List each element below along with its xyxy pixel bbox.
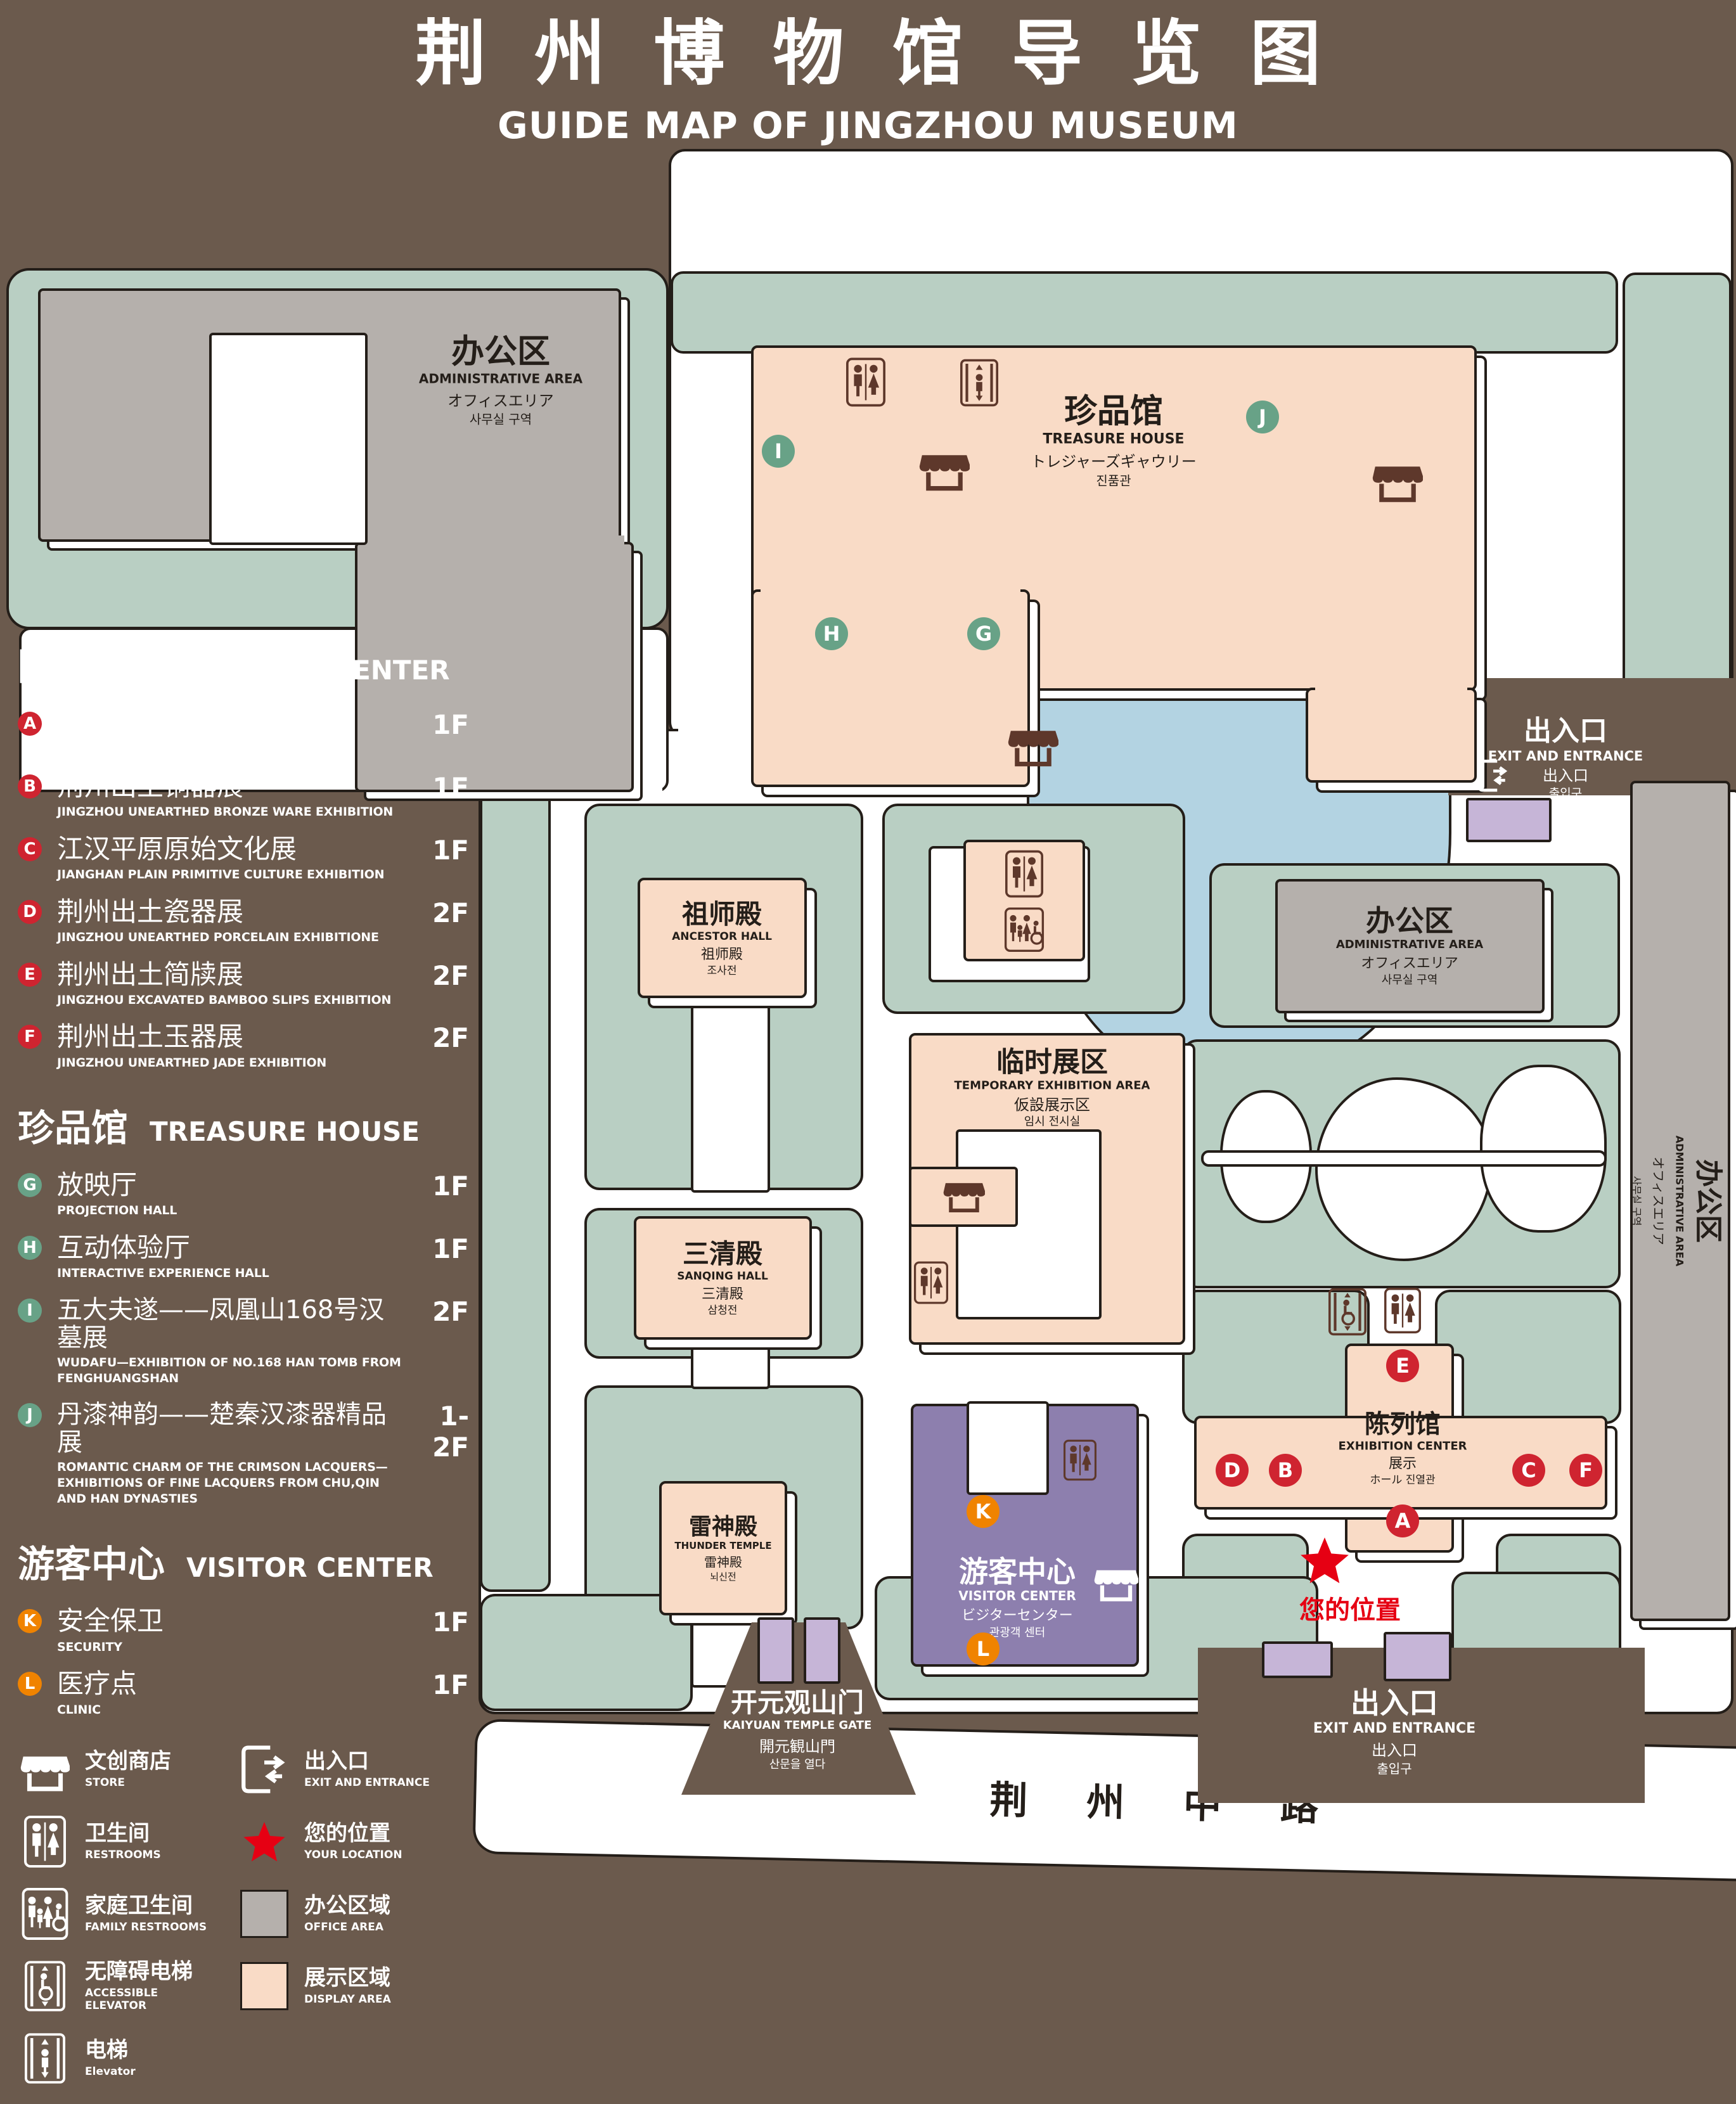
temporary-area-ja: 仮設展示区 <box>1014 1096 1090 1114</box>
family-restrooms-icon <box>18 1888 72 1940</box>
legend-symbol-exit: 出入口 EXIT AND ENTRANCE <box>237 1743 469 1796</box>
legend-B-floor: 1F <box>408 772 469 803</box>
symbol-display-area-en: DISPLAY AREA <box>304 1993 391 2006</box>
sanqing-hall-ja: 三清殿 <box>702 1286 743 1303</box>
kaiyuan-gate-label: 开元观山门 KAIYUAN TEMPLE GATE 開元観山門 산문을 열다 <box>723 1687 872 1771</box>
legend-I-en: WUDAFU—EXHIBITION OF NO.168 HAN TOMB FRO… <box>57 1355 402 1386</box>
legend-I-floor: 2F <box>408 1296 469 1327</box>
store-icon <box>1008 719 1058 769</box>
sanqing-hall-en: SANQING HALL <box>677 1270 768 1283</box>
legend-symbol-accessible-elevator: 无障碍电梯 ACCESSIBLE ELEVATOR <box>18 1960 221 2013</box>
legend-item-C: C 江汉平原原始文化展 JIANGHAN PLAIN PRIMITIVE CUL… <box>18 835 469 883</box>
symbol-family-restrooms-zh: 家庭卫生间 <box>85 1894 207 1918</box>
admin-strip-en: ADMINISTRATIVE AREA <box>1673 1136 1685 1267</box>
legend-C-en: JIANGHAN PLAIN PRIMITIVE CULTURE EXHIBIT… <box>57 867 402 883</box>
thunder-temple-zh: 雷神殿 <box>689 1514 757 1541</box>
symbol-your-location-zh: 您的位置 <box>304 1822 402 1845</box>
lawn-exh-right <box>1435 1290 1621 1424</box>
lawn-top-band <box>671 271 1618 354</box>
legend-B-zh: 荆州出土铜器展 <box>57 772 402 801</box>
store-icon <box>919 444 970 493</box>
legend-F-zh: 荆州出土玉器展 <box>57 1022 402 1051</box>
legend-E-zh: 荆州出土简牍展 <box>57 960 402 989</box>
store-icon <box>943 1174 985 1214</box>
elevator-icon <box>18 2032 72 2084</box>
admin-topleft-ko: 사무실 구역 <box>470 413 532 428</box>
legend-C-zh: 江汉平原原始文化展 <box>57 835 402 864</box>
legend-symbols: 文创商店 STORE 卫生间 RESTROOMS 家庭卫生间 FAMILY RE… <box>18 1743 469 2104</box>
legend-item-H: H 互动体验厅 INTERACTIVE EXPERIENCE HALL 1F <box>18 1233 469 1281</box>
legend-G-zh: 放映厅 <box>57 1171 402 1200</box>
store-icon <box>1372 455 1423 504</box>
admin-topleft-zh: 办公区 <box>451 333 550 372</box>
axis-path-2 <box>691 1337 770 1389</box>
ancestor-hall-label: 祖师殿 ANCESTOR HALL 祖师殿 조사전 <box>672 899 772 977</box>
visitor-center-notch <box>967 1401 1049 1495</box>
admin-topleft-label: 办公区 ADMINISTRATIVE AREA オフィスエリア 사무실 구역 <box>419 333 582 428</box>
legend-badge-H: H <box>18 1236 42 1260</box>
treasure-house-label: 珍品馆 TREASURE HOUSE トレジャーズギャウリー 진품관 <box>1031 392 1197 488</box>
marker-B: B <box>1269 1454 1302 1487</box>
exit-bottom-ko: 출입구 <box>1377 1761 1411 1776</box>
office-area-swatch <box>237 1890 292 1938</box>
exit-bottom-gate <box>1262 1641 1333 1678</box>
sanqing-hall-zh: 三清殿 <box>683 1238 762 1270</box>
kaiyuan-gate-ko: 산문을 열다 <box>769 1758 826 1772</box>
legend-badge-A: A <box>18 712 42 736</box>
symbol-exit-en: EXIT AND ENTRANCE <box>304 1776 430 1789</box>
legend-item-K: K 安全保卫 SECURITY 1F <box>18 1607 469 1655</box>
store-icon <box>18 1745 72 1793</box>
legend-item-J: J 丹漆神韵——楚秦汉漆器精品展 ROMANTIC CHARM OF THE C… <box>18 1401 469 1506</box>
exhibition-center-l3: 展示 <box>1389 1456 1417 1473</box>
restrooms-icon <box>914 1260 948 1305</box>
legend-symbol-store: 文创商店 STORE <box>18 1743 221 1796</box>
admin-right-label: 办公区 ADMINISTRATIVE AREA オフィスエリア 사무실 구역 <box>1336 904 1483 987</box>
marker-D: D <box>1216 1454 1249 1487</box>
exit-right-en: EXIT AND ENTRANCE <box>1488 748 1643 764</box>
legend-badge-B: B <box>18 774 42 799</box>
symbol-office-area-zh: 办公区域 <box>304 1894 390 1918</box>
symbol-store-en: STORE <box>85 1776 171 1789</box>
gate-pillar <box>757 1617 794 1684</box>
kaiyuan-gate-ja: 開元観山門 <box>759 1738 835 1756</box>
legend-item-I: I 五大夫遂——凤凰山168号汉墓展 WUDAFU—EXHIBITION OF … <box>18 1296 469 1386</box>
legend-section-treasure-house: 珍品馆 TREASURE HOUSE G 放映厅 PROJECTION HALL… <box>18 1098 469 1506</box>
legend-F-floor: 2F <box>408 1022 469 1053</box>
legend-section-exhibition-center: 陈列馆 EXHIBITION CENTER A 《火中的凤凰》壁画 THE PH… <box>18 637 469 1070</box>
garden-path-east <box>1480 1065 1607 1233</box>
kaiyuan-gate-zh: 开元观山门 <box>731 1687 864 1719</box>
exit-right-ko: 출입구 <box>1549 786 1582 801</box>
display-area-swatch <box>237 1962 292 2010</box>
symbol-exit-zh: 出入口 <box>304 1750 430 1773</box>
visitor-center-ja: ビジターセンター <box>961 1608 1073 1624</box>
legend-H-en: INTERACTIVE EXPERIENCE HALL <box>57 1266 402 1281</box>
admin-strip-ko: 사무실 구역 <box>1630 1176 1645 1226</box>
legend-item-E: E 荆州出土简牍展 JINGZHOU EXCAVATED BAMBOO SLIP… <box>18 960 469 1008</box>
ancestor-hall-zh: 祖师殿 <box>682 899 762 930</box>
accessible-elevator-icon <box>18 1960 72 2012</box>
legend-L-zh: 医疗点 <box>57 1669 402 1698</box>
marker-C: C <box>1512 1454 1545 1487</box>
treasure-junction-patch-1 <box>1315 679 1467 698</box>
marker-H: H <box>815 617 848 650</box>
legend-A-zh: 《火中的凤凰》壁画 <box>57 709 402 738</box>
legend-badge-D: D <box>18 900 42 924</box>
restrooms-icon <box>18 1815 72 1868</box>
treasure-house-en: TREASURE HOUSE <box>1043 432 1184 448</box>
admin-strip-ja: オフィスエリア <box>1650 1157 1668 1245</box>
legend-visitor-center-zh: 游客中心 <box>18 1534 165 1588</box>
legend-section-visitor-center: 游客中心 VISITOR CENTER K 安全保卫 SECURITY 1F L… <box>18 1534 469 1717</box>
legend-A-floor: 1F <box>408 709 469 740</box>
thunder-temple-ko: 뇌신전 <box>710 1572 736 1583</box>
restrooms-icon <box>1005 848 1043 900</box>
legend-item-G: G 放映厅 PROJECTION HALL 1F <box>18 1171 469 1219</box>
garden-path-cross <box>1201 1150 1607 1167</box>
symbol-elevator-zh: 电梯 <box>85 2039 136 2062</box>
admin-strip-label: 办公区 ADMINISTRATIVE AREA オフィスエリア 사무실 구역 <box>1630 781 1730 1621</box>
exit-right-zh: 出入口 <box>1524 715 1607 748</box>
admin-topleft-ja: オフィスエリア <box>447 392 554 410</box>
temporary-area-zh: 临时展区 <box>996 1046 1108 1079</box>
symbol-restrooms-en: RESTROOMS <box>85 1849 161 1861</box>
legend-symbol-your-location: 您的位置 YOUR LOCATION <box>237 1815 469 1868</box>
exit-bottom-en: EXIT AND ENTRANCE <box>1313 1721 1476 1737</box>
lawn-left-strip <box>480 755 551 1592</box>
legend-badge-K: K <box>18 1609 42 1633</box>
legend-exhibition-center-en: EXHIBITION CENTER <box>150 655 450 686</box>
visitor-center-zh: 游客中心 <box>959 1555 1076 1589</box>
exhibition-center-label: 陈列馆 EXHIBITION CENTER 展示 ホール 진열관 <box>1339 1409 1467 1486</box>
symbol-restrooms-zh: 卫生间 <box>85 1822 161 1845</box>
exit-bottom-gate <box>1384 1632 1451 1681</box>
exit-right-zh2: 出入口 <box>1543 767 1588 785</box>
admin-right-ja: オフィスエリア <box>1361 956 1458 972</box>
legend-K-floor: 1F <box>408 1607 469 1638</box>
legend-item-F: F 荆州出土玉器展 JINGZHOU UNEARTHED JADE EXHIBI… <box>18 1022 469 1070</box>
legend-K-zh: 安全保卫 <box>57 1607 402 1636</box>
symbol-elevator-en: Elevator <box>85 2065 136 2078</box>
thunder-temple-en: THUNDER TEMPLE <box>674 1541 771 1552</box>
symbol-store-zh: 文创商店 <box>85 1750 171 1773</box>
visitor-center-ko: 관광객 센터 <box>989 1626 1046 1639</box>
marker-G: G <box>967 617 1000 650</box>
legend-D-en: JINGZHOU UNEARTHED PORCELAIN EXHIBITIONE <box>57 930 402 946</box>
sanqing-hall-ko: 삼청전 <box>708 1304 738 1317</box>
gate-pillar <box>804 1617 840 1684</box>
legend-badge-I: I <box>18 1299 42 1323</box>
legend-symbol-elevator: 电梯 Elevator <box>18 2032 221 2085</box>
legend-I-zh: 五大夫遂——凤凰山168号汉墓展 <box>57 1296 402 1352</box>
legend-treasure-house-zh: 珍品馆 <box>18 1098 128 1151</box>
page-title: 荆州博物馆导览图 <box>0 0 1736 99</box>
exit-bottom-zh: 出入口 <box>1351 1686 1438 1721</box>
lawn-topright-strip <box>1623 273 1732 734</box>
symbol-family-restrooms-en: FAMILY RESTROOMS <box>85 1921 207 1934</box>
legend-symbol-family-restrooms: 家庭卫生间 FAMILY RESTROOMS <box>18 1887 221 1940</box>
admin-right-en: ADMINISTRATIVE AREA <box>1336 938 1483 951</box>
legend-symbol-restrooms: 卫生间 RESTROOMS <box>18 1815 221 1868</box>
legend-J-en: ROMANTIC CHARM OF THE CRIMSON LACQUERS—E… <box>57 1459 402 1506</box>
exit-icon <box>237 1745 292 1794</box>
visitor-center-label: 游客中心 VISITOR CENTER ビジターセンター 관광객 센터 <box>958 1555 1076 1639</box>
guide-map-poster: { "title": {"zh": "荆州博物馆导览图", "en": "GUI… <box>0 0 1736 1856</box>
exhibition-center-zh: 陈列馆 <box>1365 1409 1441 1439</box>
thunder-temple-ja: 雷神殿 <box>704 1555 742 1570</box>
legend-G-floor: 1F <box>408 1171 469 1202</box>
admin-right-ko: 사무실 구역 <box>1382 974 1438 987</box>
admin-junction-patch <box>364 536 624 551</box>
symbol-accessible-elevator-zh: 无障碍电梯 <box>85 1960 221 1984</box>
legend-symbol-display-area: 展示区域 DISPLAY AREA <box>237 1960 469 2013</box>
legend-B-en: JINGZHOU UNEARTHED BRONZE WARE EXHIBITIO… <box>57 804 402 820</box>
legend-item-A: A 《火中的凤凰》壁画 THE PHOENIX IN FIRE "MURAL P… <box>18 709 469 757</box>
accessible-elevator-icon <box>1328 1285 1366 1338</box>
legend-E-floor: 2F <box>408 960 469 991</box>
treasure-junction-patch-2 <box>761 582 1020 605</box>
legend-K-en: SECURITY <box>57 1639 402 1655</box>
your-location-text: 您的位置 <box>1299 1589 1401 1626</box>
legend-J-floor: 1-2F <box>408 1401 469 1463</box>
admin-topleft-en: ADMINISTRATIVE AREA <box>419 372 582 387</box>
exit-right-gate <box>1466 798 1552 842</box>
legend-A-en: THE PHOENIX IN FIRE "MURAL PAINTING <box>57 741 402 757</box>
admin-courtyard <box>209 333 368 545</box>
marker-L: L <box>967 1633 1000 1665</box>
exhibition-center-l4: ホール 진열관 <box>1370 1474 1435 1487</box>
legend-badge-C: C <box>18 837 42 861</box>
temporary-area-ko: 임시 전시실 <box>1024 1115 1081 1129</box>
restrooms-icon <box>1384 1284 1421 1337</box>
marker-K: K <box>967 1495 1000 1528</box>
legend-badge-L: L <box>18 1672 42 1696</box>
symbol-display-area-zh: 展示区域 <box>304 1966 391 1990</box>
your-location-star-icon <box>1301 1537 1349 1583</box>
restrooms-icon <box>1064 1436 1096 1484</box>
legend-H-zh: 互动体验厅 <box>57 1233 402 1262</box>
marker-I: I <box>762 435 795 468</box>
legend-F-en: JINGZHOU UNEARTHED JADE EXHIBITION <box>57 1055 402 1071</box>
admin-right-zh: 办公区 <box>1366 904 1453 938</box>
legend-badge-J: J <box>18 1403 42 1427</box>
symbol-your-location-en: YOUR LOCATION <box>304 1849 402 1861</box>
symbol-office-area-en: OFFICE AREA <box>304 1921 390 1934</box>
elevator-icon <box>960 356 998 409</box>
admin-strip-zh: 办公区 <box>1690 1159 1731 1243</box>
legend-L-floor: 1F <box>408 1669 469 1700</box>
sanqing-hall-label: 三清殿 SANQING HALL 三清殿 삼청전 <box>677 1238 768 1317</box>
marker-E: E <box>1386 1349 1419 1382</box>
building-treasure-east-wing <box>1306 688 1477 783</box>
legend-badge-G: G <box>18 1173 42 1197</box>
legend-symbol-office-area: 办公区域 OFFICE AREA <box>237 1887 469 1940</box>
marker-J: J <box>1246 401 1279 433</box>
legend-treasure-house-en: TREASURE HOUSE <box>150 1116 420 1147</box>
legend-D-zh: 荆州出土瓷器展 <box>57 897 402 927</box>
restrooms-icon <box>846 355 885 409</box>
legend-badge-E: E <box>18 963 42 987</box>
marker-F: F <box>1569 1454 1602 1487</box>
symbol-accessible-elevator-en: ACCESSIBLE ELEVATOR <box>85 1987 221 2012</box>
legend-badge-F: F <box>18 1025 42 1049</box>
store-icon <box>1094 1560 1138 1603</box>
legend-H-floor: 1F <box>408 1233 469 1264</box>
treasure-house-ja: トレジャーズギャウリー <box>1031 453 1197 471</box>
kaiyuan-gate-en: KAIYUAN TEMPLE GATE <box>723 1719 872 1733</box>
ancestor-hall-ja: 祖师殿 <box>701 947 743 963</box>
legend-C-floor: 1F <box>408 835 469 866</box>
legend-L-en: CLINIC <box>57 1702 402 1718</box>
legend-J-zh: 丹漆神韵——楚秦汉漆器精品展 <box>57 1401 402 1456</box>
legend-visitor-center-en: VISITOR CENTER <box>186 1552 434 1583</box>
visitor-center-en: VISITOR CENTER <box>958 1589 1076 1604</box>
legend: 陈列馆 EXHIBITION CENTER A 《火中的凤凰》壁画 THE PH… <box>18 637 469 2104</box>
legend-item-D: D 荆州出土瓷器展 JINGZHOU UNEARTHED PORCELAIN E… <box>18 897 469 946</box>
temporary-area-label: 临时展区 TEMPORARY EXHIBITION AREA 仮設展示区 임시 … <box>955 1046 1150 1129</box>
treasure-house-ko: 진품관 <box>1096 473 1131 489</box>
axis-path-1 <box>691 995 770 1193</box>
marker-A: A <box>1386 1504 1419 1537</box>
legend-item-B: B 荆州出土铜器展 JINGZHOU UNEARTHED BRONZE WARE… <box>18 772 469 820</box>
map-header: 荆州博物馆导览图 GUIDE MAP OF JINGZHOU MUSEUM <box>0 0 1736 147</box>
legend-G-en: PROJECTION HALL <box>57 1203 402 1219</box>
exhibition-center-en: EXHIBITION CENTER <box>1339 1439 1467 1453</box>
legend-D-floor: 2F <box>408 897 469 928</box>
legend-E-en: JINGZHOU EXCAVATED BAMBOO SLIPS EXHIBITI… <box>57 992 402 1008</box>
ancestor-hall-en: ANCESTOR HALL <box>672 930 772 943</box>
ancestor-hall-ko: 조사전 <box>707 965 737 977</box>
temporary-area-en: TEMPORARY EXHIBITION AREA <box>955 1079 1150 1093</box>
legend-item-L: L 医疗点 CLINIC 1F <box>18 1669 469 1717</box>
family-restrooms-icon <box>1004 908 1045 952</box>
exit-bottom-label: 出入口 EXIT AND ENTRANCE 出入口 출입구 <box>1313 1686 1476 1776</box>
thunder-temple-label: 雷神殿 THUNDER TEMPLE 雷神殿 뇌신전 <box>674 1514 771 1582</box>
page-subtitle: GUIDE MAP OF JINGZHOU MUSEUM <box>0 104 1736 147</box>
legend-exhibition-center-zh: 陈列馆 <box>18 637 128 690</box>
exit-bottom-zh2: 出入口 <box>1372 1742 1417 1760</box>
exit-right-label: 出入口 EXIT AND ENTRANCE 出入口 출입구 <box>1488 715 1643 801</box>
treasure-house-zh: 珍品馆 <box>1064 392 1163 431</box>
